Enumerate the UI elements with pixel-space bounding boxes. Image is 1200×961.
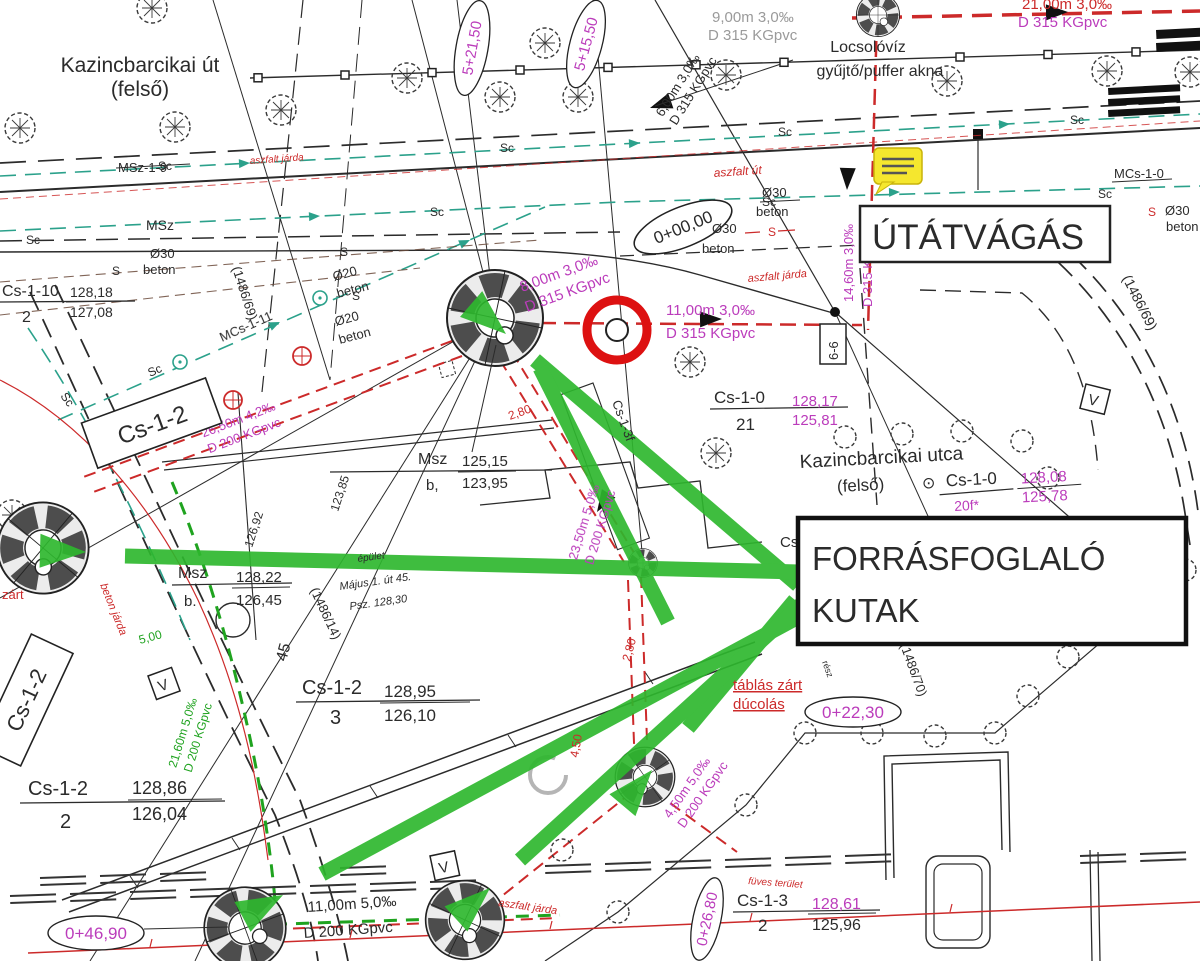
aszfalt-jarda-3: aszfalt járda bbox=[498, 897, 558, 917]
elev-12692: 126,92 bbox=[242, 509, 267, 549]
pipe-900-l2: D 315 KGpvc bbox=[708, 27, 798, 44]
msz-left-sub: b. bbox=[184, 593, 197, 610]
aszfalt-jarda-2: aszfalt járda bbox=[747, 268, 807, 285]
street-name-mid: Kazincbarcikai utca (felső) ⊙ Cs-1-0 20f… bbox=[799, 437, 1082, 522]
msz-mid-bot: 123,95 bbox=[462, 475, 508, 492]
s-mark: S bbox=[340, 245, 348, 259]
msz-mid-top: 125,15 bbox=[462, 453, 508, 470]
d20-label: Ø20 bbox=[333, 308, 361, 329]
street-mid-name: Kazincbarcikai utca bbox=[799, 443, 964, 473]
cs12-3-num: 3 bbox=[330, 707, 341, 729]
dim-280b: 2,80 bbox=[619, 636, 639, 662]
sticky-note-icon[interactable] bbox=[874, 148, 922, 194]
forrasfoglalo-line1: FORRÁSFOGLALÓ bbox=[812, 540, 1105, 577]
msz-mid-sub: b, bbox=[426, 477, 439, 494]
pipe-1100-l2: D 315 KGpvc bbox=[666, 325, 756, 342]
house-number-45: 45 bbox=[273, 641, 294, 663]
d30-label: Ø30 bbox=[1165, 203, 1190, 218]
cs10-20-bot: 125,78 bbox=[1021, 487, 1068, 506]
cs12-2-name: Cs-1-2 bbox=[28, 778, 88, 800]
d30-label: Ø30 bbox=[762, 185, 787, 200]
cs10-21-top: 128,17 bbox=[792, 393, 838, 410]
section-6-6: 6-6 bbox=[826, 341, 841, 360]
beton-label: beton bbox=[702, 241, 735, 256]
hedge-rows bbox=[10, 852, 1186, 903]
cs110-bot: 127,08 bbox=[70, 304, 113, 320]
beton-label: beton bbox=[756, 204, 789, 219]
msz-left-top: 128,22 bbox=[236, 569, 282, 586]
cs110-num: 2 bbox=[22, 309, 31, 326]
aszfalt-jarda-1: aszfalt járda bbox=[249, 152, 304, 167]
aszfalt-ut: aszfalt út bbox=[713, 163, 763, 180]
sc-mark: Sc bbox=[1098, 187, 1112, 201]
fuves-terulet: füves terület bbox=[748, 876, 804, 891]
label-mcs-1-0: MCs-1-0 bbox=[1114, 166, 1164, 181]
cs12-3-top: 128,95 bbox=[384, 682, 436, 701]
msz-left-name: Msz bbox=[178, 565, 207, 582]
cs10-21-num: 21 bbox=[736, 415, 755, 434]
cs12-2-num: 2 bbox=[60, 811, 71, 833]
pipe-1100b-l1: 11,00m 5,0‰ bbox=[307, 893, 397, 916]
d30-label: Ø30 bbox=[150, 246, 175, 261]
parcel-1486-69: (1486/69) bbox=[229, 264, 260, 322]
dim-280a: 2,80 bbox=[506, 402, 533, 423]
label-msz: MSz bbox=[146, 217, 174, 233]
sc-mark: Sc bbox=[26, 233, 40, 247]
pipe-900-l1: 9,00m 3,0‰ bbox=[712, 9, 794, 26]
parcel-1486-70: (1486/70) bbox=[897, 641, 930, 698]
street-mid-ref: Cs-1-0 bbox=[945, 469, 997, 491]
street-name-top: Kazincbarcikai út (felső) bbox=[61, 54, 220, 101]
green-annotation-arrows bbox=[40, 291, 806, 932]
circle-dot-icon: ⊙ bbox=[922, 475, 936, 493]
well-top-right bbox=[856, 0, 899, 37]
pipe-1460-l1: 14,60m 3,0‰ bbox=[841, 224, 856, 302]
cs110-name: Cs-1-10 bbox=[2, 283, 59, 300]
msz-left-bot: 126,45 bbox=[236, 592, 282, 609]
building-l3: Psz. 128,30 bbox=[349, 593, 409, 613]
beton-label: beton bbox=[1166, 219, 1199, 234]
sc-mark: Sc bbox=[1070, 113, 1084, 127]
s-mark-red: S bbox=[1148, 205, 1156, 219]
survey-map: 0+00,00 0+22,30 0+46,90 0+26,80 5+21,50 … bbox=[0, 0, 1200, 961]
street-mid-felso: (felső) bbox=[837, 475, 885, 496]
sc-mark: Sc bbox=[58, 390, 78, 410]
msz-mid-name: Msz bbox=[418, 451, 447, 468]
utatvagas-callout: ÚTÁTVÁGÁS bbox=[860, 206, 1110, 262]
d30-label: Ø30 bbox=[712, 221, 737, 236]
forrasfoglalo-line2: KUTAK bbox=[812, 592, 920, 629]
beton-label: beton bbox=[143, 262, 176, 277]
bushes bbox=[551, 420, 1196, 923]
sc-mark: Sc bbox=[430, 205, 444, 219]
cs12-2-bot: 126,04 bbox=[132, 804, 187, 824]
sc-mark: Sc bbox=[146, 361, 164, 379]
parcel-1486-69b: (1486/69) bbox=[1119, 272, 1160, 333]
utatvagas-label: ÚTÁTVÁGÁS bbox=[872, 218, 1084, 257]
pipe-1100-l1: 11,00m 3,0‰ bbox=[666, 302, 755, 319]
cs10-20-top: 128,08 bbox=[1020, 468, 1067, 487]
sc-mark: Sc bbox=[500, 141, 514, 155]
elev-12385: 123,85 bbox=[328, 473, 353, 513]
cs13-2-num: 2 bbox=[758, 916, 767, 935]
station-0-4690: 0+46,90 bbox=[65, 924, 127, 943]
street-top-line2: (felső) bbox=[111, 78, 169, 101]
cs13-2-bot: 125,96 bbox=[812, 917, 861, 934]
cs10-21-name: Cs-1-0 bbox=[714, 388, 765, 407]
label-cs-partial: Cs bbox=[780, 534, 798, 551]
zart-note: zárt bbox=[2, 587, 24, 602]
cs12-2-top: 128,86 bbox=[132, 778, 187, 798]
parcel-1486-14: (1486/14) bbox=[307, 585, 344, 642]
station-0-2230: 0+22,30 bbox=[822, 703, 884, 722]
cs12-3-bot: 126,10 bbox=[384, 706, 436, 725]
dim-450: 4,50 bbox=[567, 733, 585, 759]
s-mark-red: S bbox=[768, 225, 776, 239]
tablas-zart: táblás zárt bbox=[733, 677, 803, 694]
highlight-circle-red bbox=[587, 300, 647, 360]
beton-jarda: beton járda bbox=[97, 582, 129, 638]
cs13-2-top: 128,61 bbox=[812, 896, 861, 913]
cs10-21-bot: 125,81 bbox=[792, 412, 838, 429]
cs13-2-name: Cs-1-3 bbox=[737, 891, 788, 910]
sc-mark: Sc bbox=[158, 159, 172, 173]
cs12-3-name: Cs-1-2 bbox=[302, 677, 362, 699]
cs110-top: 128,18 bbox=[70, 284, 113, 300]
s-mark: S bbox=[112, 264, 120, 278]
locsolviz-line1: Locsolóvíz bbox=[830, 39, 906, 56]
ducolas: dúcolás bbox=[733, 696, 785, 713]
node-tables: Cs-1-10 2 128,18 127,08 Cs-1-2 Cs-1-2 Cs… bbox=[0, 283, 880, 935]
survey-map-page: 0+00,00 0+22,30 0+46,90 0+26,80 5+21,50 … bbox=[0, 0, 1200, 961]
pipe-2100-l2: D 315 KGpvc bbox=[1018, 14, 1108, 31]
dim-500: 5,00 bbox=[137, 627, 163, 647]
pipe-1100b-l2: D 200 KGpvc bbox=[303, 919, 394, 942]
cs10-20-num: 20f* bbox=[954, 497, 980, 514]
resz-note: rész bbox=[820, 659, 835, 679]
locsolviz-line2: gyűjtő/puffer akna bbox=[817, 63, 944, 80]
street-top-line1: Kazincbarcikai út bbox=[61, 54, 220, 77]
sc-mark: Sc bbox=[778, 125, 792, 139]
pipe-2100-l1: 21,00m 3,0‰ bbox=[1022, 0, 1112, 13]
forrasfoglalo-callout: FORRÁSFOGLALÓ KUTAK bbox=[798, 518, 1186, 644]
